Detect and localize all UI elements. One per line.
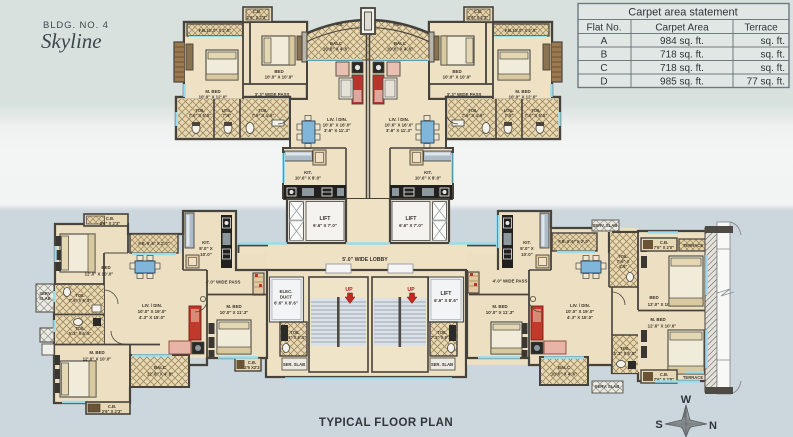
svg-text:LIV. / DIN.: LIV. / DIN.	[570, 303, 590, 308]
svg-text:LIFT: LIFT	[320, 216, 332, 222]
svg-text:10'.0" X 12'.0": 10'.0" X 12'.0"	[509, 95, 538, 100]
svg-text:DUCT: DUCT	[280, 295, 293, 300]
svg-text:LIFT: LIFT	[406, 216, 418, 222]
svg-text:SERV. SLAB: SERV. SLAB	[595, 384, 620, 389]
svg-text:10'.0" X 4'.6": 10'.0" X 4'.6"	[551, 372, 577, 377]
svg-text:7'.6" X 4'.6": 7'.6" X 4'.6"	[252, 113, 275, 118]
svg-text:718 sq. ft.: 718 sq. ft.	[660, 63, 704, 74]
svg-text:4'.6": 4'.6"	[619, 264, 628, 269]
svg-text:2'6" X 2'3": 2'6" X 2'3"	[468, 15, 488, 20]
svg-text:F.B.: F.B.	[393, 22, 400, 27]
svg-text:S: S	[655, 419, 662, 431]
svg-text:BALC: BALC	[330, 41, 343, 46]
svg-text:Terrace: Terrace	[744, 23, 778, 34]
svg-text:LIV. / DIN.: LIV. / DIN.	[389, 117, 409, 122]
svg-text:SER. SLAB: SER. SLAB	[431, 362, 453, 367]
svg-text:D: D	[600, 77, 607, 88]
svg-text:10'.6" X 4'.6": 10'.6" X 4'.6"	[387, 47, 413, 52]
svg-text:BED: BED	[452, 69, 461, 74]
svg-text:3'.3" WIDE PASS: 3'.3" WIDE PASS	[447, 92, 482, 97]
svg-text:4'.3" X 15'.0": 4'.3" X 15'.0"	[567, 315, 593, 320]
svg-text:M. BED: M. BED	[492, 304, 507, 309]
svg-text:2'6" X 2'3": 2'6" X 2'3"	[100, 221, 120, 226]
svg-text:77 sq. ft.: 77 sq. ft.	[747, 77, 785, 88]
svg-text:6'.6" X 8'.6": 6'.6" X 8'.6"	[434, 298, 458, 303]
svg-text:C.B.: C.B.	[474, 9, 482, 14]
svg-text:7'.0" X 5'.5": 7'.0" X 5'.5"	[525, 113, 548, 118]
svg-text:BALC: BALC	[154, 365, 167, 370]
svg-text:12'.8" X 4'.8": 12'.8" X 4'.8"	[147, 372, 173, 377]
svg-text:7'.6" X 4'.6": 7'.6" X 4'.6"	[462, 113, 485, 118]
svg-text:10'.0" X 11'.3": 10'.0" X 11'.3"	[486, 310, 514, 315]
svg-text:BED: BED	[101, 265, 110, 270]
svg-text:sq. ft.: sq. ft.	[761, 36, 785, 47]
svg-text:2'6" X 2'3": 2'6" X 2'3"	[102, 409, 122, 414]
svg-text:10'.0": 10'.0"	[521, 252, 533, 257]
svg-text:A: A	[601, 36, 608, 47]
svg-text:sq. ft.: sq. ft.	[761, 63, 785, 74]
svg-text:KIT.: KIT.	[523, 240, 531, 245]
svg-text:Carpet area statement: Carpet area statement	[628, 7, 737, 19]
svg-text:5'.3" X 5'.5": 5'.3" X 5'.5"	[614, 351, 637, 356]
svg-text:M. BED: M. BED	[89, 350, 104, 355]
svg-text:5'.3" X 5'.5": 5'.3" X 5'.5"	[69, 331, 92, 336]
svg-text:6'.6" X 7'.0": 6'.6" X 7'.0"	[399, 223, 423, 228]
svg-text:8'.0" X: 8'.0" X	[520, 246, 533, 251]
svg-text:10'.6" X 16'.0": 10'.6" X 16'.0"	[323, 123, 352, 128]
svg-text:BALC: BALC	[394, 41, 407, 46]
svg-text:LIV. / DIN.: LIV. / DIN.	[327, 117, 347, 122]
svg-text:10'.0" X 12'.0": 10'.0" X 12'.0"	[199, 95, 228, 100]
svg-text:KIT.: KIT.	[424, 170, 432, 175]
svg-text:F.B. 9'.6" X 2'.0": F.B. 9'.6" X 2'.0"	[138, 241, 169, 246]
svg-text:W: W	[681, 394, 692, 406]
svg-text:7'.6": 7'.6"	[223, 113, 232, 118]
svg-text:2'6 X2'3: 2'6 X2'3	[244, 365, 260, 370]
svg-text:7'.6" X 6'.8": 7'.6" X 6'.8"	[69, 298, 92, 303]
svg-text:718 sq. ft.: 718 sq. ft.	[660, 50, 704, 61]
svg-text:KIT.: KIT.	[304, 170, 312, 175]
svg-text:M. BED: M. BED	[226, 304, 241, 309]
svg-text:Skyline: Skyline	[41, 29, 102, 53]
svg-text:6'.6" X 7'.0": 6'.6" X 7'.0"	[313, 223, 337, 228]
svg-text:UP: UP	[345, 287, 353, 293]
svg-text:SERV. SLAB: SERV. SLAB	[593, 223, 618, 228]
svg-text:KIT.: KIT.	[202, 240, 210, 245]
svg-text:4'.0" WIDE PASS: 4'.0" WIDE PASS	[493, 279, 528, 284]
svg-text:TERRACE: TERRACE	[683, 375, 703, 380]
svg-text:2'6" X 2'3": 2'6" X 2'3"	[247, 15, 267, 20]
svg-text:7'.6": 7'.6"	[505, 113, 514, 118]
svg-text:BED: BED	[649, 295, 658, 300]
svg-text:TERRACE: TERRACE	[683, 243, 703, 248]
svg-text:8'.0" X: 8'.0" X	[199, 246, 212, 251]
svg-text:LIFT: LIFT	[441, 291, 453, 297]
svg-text:sq. ft.: sq. ft.	[761, 50, 785, 61]
svg-text:6'.6" X 8'.6": 6'.6" X 8'.6"	[274, 301, 298, 306]
svg-text:M. BED: M. BED	[205, 89, 220, 94]
svg-text:SLAB: SLAB	[39, 296, 50, 301]
svg-text:12'.6" X 10'.6": 12'.6" X 10'.6"	[648, 324, 677, 329]
svg-text:3'.6" X 11'.3": 3'.6" X 11'.3"	[386, 128, 412, 133]
svg-text:10'.0": 10'.0"	[200, 252, 212, 257]
svg-text:F.B.10'.0" X 2'.0": F.B.10'.0" X 2'.0"	[199, 28, 232, 33]
svg-text:Carpet Area: Carpet Area	[655, 23, 709, 34]
svg-text:B: B	[601, 50, 608, 61]
svg-text:7'.0" X 5'.5": 7'.0" X 5'.5"	[189, 113, 212, 118]
svg-text:BED: BED	[274, 69, 283, 74]
svg-text:3'.6" X 11'.3": 3'.6" X 11'.3"	[324, 128, 350, 133]
svg-text:10'.0" X 11'.3": 10'.0" X 11'.3"	[220, 310, 248, 315]
svg-text:M. BED: M. BED	[650, 317, 665, 322]
svg-text:F.B.10'.0" X 2'.0": F.B.10'.0" X 2'.0"	[505, 28, 538, 33]
svg-text:F.B. 9'.6" X 2'.0": F.B. 9'.6" X 2'.0"	[558, 239, 589, 244]
svg-text:SER. SLAB: SER. SLAB	[283, 362, 305, 367]
svg-text:ELEC.: ELEC.	[280, 289, 293, 294]
svg-text:4'.0" WIDE PASS: 4'.0" WIDE PASS	[206, 280, 241, 285]
svg-text:N: N	[709, 420, 717, 432]
svg-text:10'.6" X 16'.0": 10'.6" X 16'.0"	[385, 123, 414, 128]
svg-text:10'.6" X 8'.0": 10'.6" X 8'.0"	[415, 176, 441, 181]
svg-text:F.B.: F.B.	[336, 22, 343, 27]
svg-text:UP: UP	[407, 287, 415, 293]
svg-text:4'.3" X 15'.0": 4'.3" X 15'.0"	[139, 315, 165, 320]
svg-text:5'.0" WIDE LOBBY: 5'.0" WIDE LOBBY	[342, 257, 388, 263]
svg-text:LIV. / DIN.: LIV. / DIN.	[142, 303, 162, 308]
svg-text:10'.0" X 19'.0": 10'.0" X 19'.0"	[138, 309, 167, 314]
svg-text:10'.0" X 10'.9": 10'.0" X 10'.9"	[443, 75, 472, 80]
svg-text:7'6" X 2'0": 7'6" X 2'0"	[654, 245, 674, 250]
svg-text:984 sq. ft.: 984 sq. ft.	[660, 36, 704, 47]
svg-text:BALC: BALC	[558, 365, 571, 370]
svg-text:10'.0" X 10'.9": 10'.0" X 10'.9"	[265, 75, 294, 80]
svg-text:10'.6" X 4'.6": 10'.6" X 4'.6"	[323, 47, 349, 52]
svg-text:C: C	[600, 63, 607, 74]
svg-text:M. BED: M. BED	[515, 89, 530, 94]
svg-text:Flat No.: Flat No.	[586, 23, 621, 34]
svg-text:TYPICAL FLOOR PLAN: TYPICAL FLOOR PLAN	[319, 417, 453, 429]
svg-text:985 sq. ft.: 985 sq. ft.	[660, 77, 704, 88]
svg-text:10'.0" X 19'.0": 10'.0" X 19'.0"	[566, 309, 595, 314]
svg-text:3'.3" WIDE PASS: 3'.3" WIDE PASS	[255, 92, 290, 97]
svg-text:10'.6" X 8'.0": 10'.6" X 8'.0"	[295, 176, 321, 181]
svg-text:C.B.: C.B.	[253, 9, 261, 14]
